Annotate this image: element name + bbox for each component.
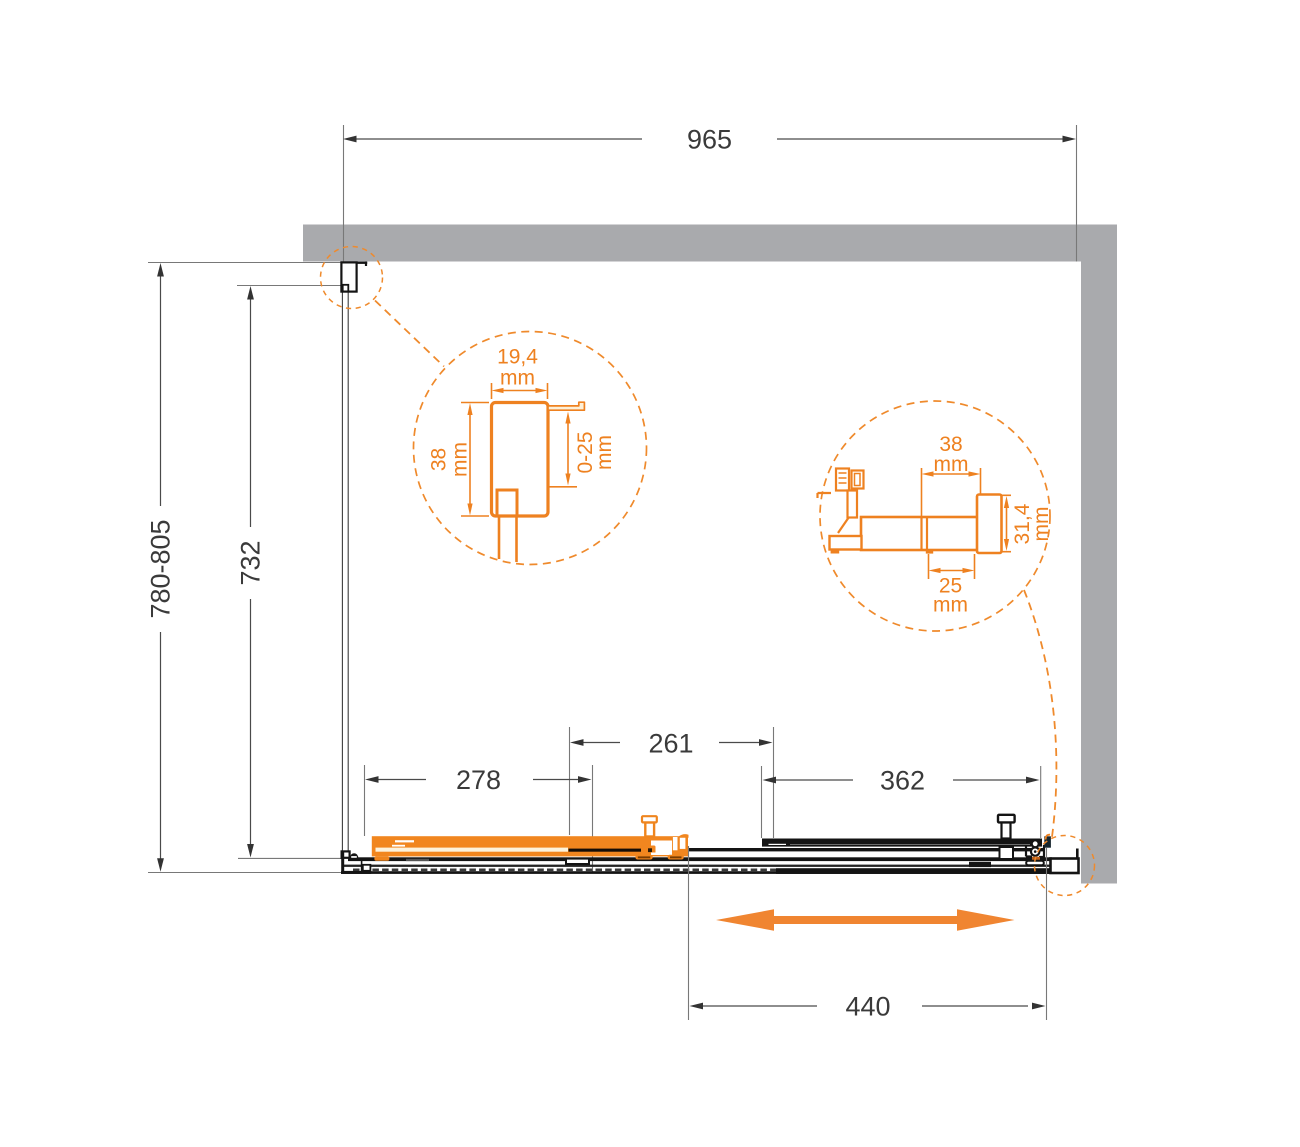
svg-text:19,4: 19,4 [497, 346, 538, 369]
svg-text:780-805: 780-805 [146, 519, 176, 618]
svg-text:362: 362 [880, 766, 925, 796]
svg-text:mm: mm [1030, 507, 1053, 542]
svg-text:732: 732 [236, 540, 266, 585]
svg-text:mm: mm [933, 594, 968, 617]
svg-text:mm: mm [593, 435, 616, 470]
svg-text:mm: mm [500, 367, 535, 390]
svg-text:440: 440 [845, 992, 890, 1022]
svg-text:38: 38 [428, 448, 451, 471]
svg-text:mm: mm [449, 442, 472, 477]
svg-text:278: 278 [456, 765, 501, 795]
svg-text:261: 261 [648, 728, 693, 758]
svg-text:965: 965 [687, 125, 732, 155]
svg-text:mm: mm [934, 453, 969, 476]
